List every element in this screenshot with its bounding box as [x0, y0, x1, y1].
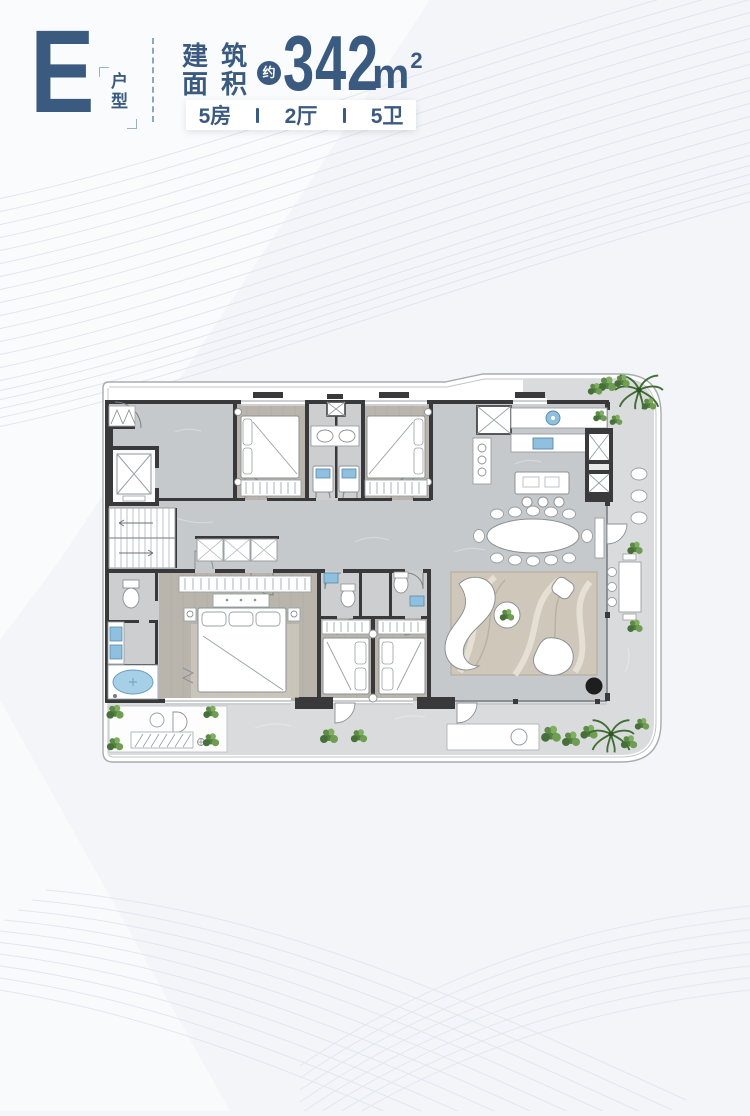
approx-badge: 约 [257, 61, 281, 85]
area-unit: m2 [372, 50, 422, 98]
dashed-divider [152, 38, 154, 122]
elevator [113, 450, 155, 502]
spec-bathrooms: 5卫 [371, 100, 404, 130]
area-unit-exponent: 2 [410, 48, 422, 73]
unit-letter: E [30, 18, 95, 127]
bedroom-4 [378, 620, 426, 694]
floor-lamp [586, 678, 603, 695]
staircase [109, 508, 175, 568]
header: E 户型 建筑面积 约 342 m2 5房 2厅 5卫 [0, 0, 750, 150]
spec-separator [256, 108, 259, 123]
terrace-bench [447, 724, 539, 750]
entry-closet [109, 406, 135, 426]
kitchen-island [515, 472, 569, 507]
spec-living: 2厅 [285, 100, 318, 130]
area-label-line2: 面积 [182, 69, 260, 99]
spec-separator [343, 108, 346, 123]
floor-plan [95, 372, 675, 775]
area-label-line1: 建筑 [182, 41, 260, 71]
hall-cabinets [197, 539, 277, 561]
area-value: 342 [283, 24, 379, 102]
service-shaft [585, 428, 613, 502]
bedroom-top-right [365, 409, 432, 497]
room-specs: 5房 2厅 5卫 [186, 100, 416, 130]
unit-type-label: 户型 [106, 72, 130, 124]
bedroom-3 [322, 620, 377, 702]
area-unit-base: m [372, 50, 409, 97]
bedroom-top-left [235, 409, 302, 497]
spec-bedrooms: 5房 [199, 100, 232, 130]
